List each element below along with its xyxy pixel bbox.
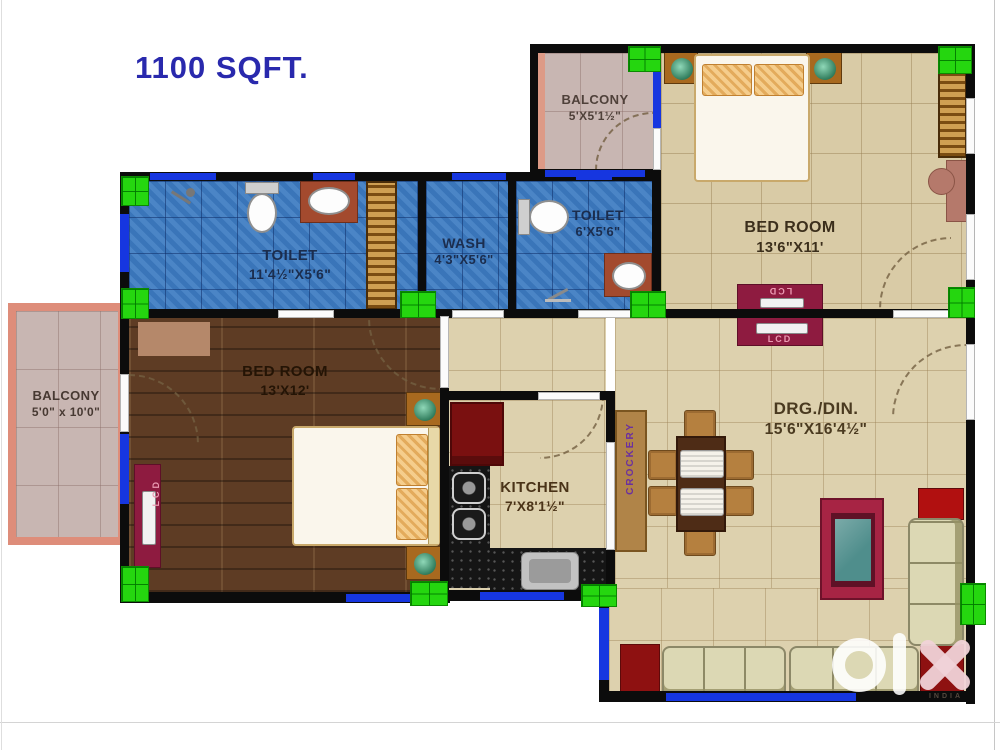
lcd-label: LCD [151,479,161,507]
bedroom-left-door [440,316,449,388]
kitchen-living-opening [606,442,615,550]
floor-mat [138,322,210,356]
column-marker [960,583,986,625]
room-label-toilet-big: TOILET 11'4½"X5'6" [180,246,400,283]
side-table-red [918,488,964,520]
room-name: KITCHEN [470,478,600,498]
room-label-kitchen: KITCHEN 7'X8'1½" [470,478,600,515]
olx-bar-icon [893,633,906,695]
room-name: WASH [416,234,512,252]
dining-table [676,436,726,532]
pillow [754,64,804,96]
tv-screen [760,298,804,308]
double-bed-top [694,54,810,182]
window [313,173,355,180]
room-dims: 6'X5'6" [540,224,656,241]
column-marker [948,287,975,318]
dining-chair [724,486,754,516]
dining-chair [684,528,716,556]
refrigerator [450,402,504,466]
column-marker [121,566,149,602]
double-bed-left [292,426,440,546]
room-name: DRG./DIN. [716,398,916,420]
column-marker [400,291,436,318]
bedroom-top-door [893,310,949,318]
shower-icon [545,283,575,309]
nightstand [406,392,442,426]
page-edge-left [1,0,2,750]
kitchen-sink [521,552,579,590]
side-table-red [620,644,660,692]
crockery-label: CROCKERY [625,422,636,495]
window-opening [966,214,975,280]
balcony-left-floor [16,311,118,537]
room-name: BALCONY [14,388,118,405]
room-label-wash: WASH 4'3"X5'6" [416,234,512,269]
lcd-label: LCD [738,334,822,344]
olx-watermark: INDIA [810,625,990,705]
center-table [820,498,884,600]
room-dims: 13'6"X11' [700,239,880,258]
room-dims: 11'4½"X5'6" [180,266,400,284]
wall-top [530,44,975,53]
column-marker [121,176,149,206]
washbasin [612,262,646,290]
room-dims: 5'X5'1½" [540,109,650,125]
page-title: 1100 SQFT. [135,50,309,86]
window [576,173,612,180]
balcony-left-door [120,374,129,432]
room-name: TOILET [540,206,656,224]
washbasin-counter [300,181,358,223]
floor-plan-canvas: LCD LCD LCD CROCKERY [0,0,1000,750]
page-edge-right [994,0,995,750]
toilet-wc-bowl [247,193,277,233]
wash-door [452,310,504,318]
pillow [702,64,752,96]
dining-chair [648,486,678,516]
window-opening [966,98,975,154]
column-marker [581,584,617,607]
nightstand [406,546,442,580]
main-entrance-door [966,344,975,420]
kitchen-door-arc [540,395,604,459]
placemat [680,450,724,478]
dining-chair [648,450,678,480]
plant-icon [814,58,836,80]
olx-x-icon [913,637,977,693]
balcony-top-door [653,128,661,170]
column-marker [410,581,448,606]
room-label-toilet-small: TOILET 6'X5'6" [540,206,656,241]
toilet-small-door [578,310,632,318]
nightstand [664,52,698,84]
plant-icon [414,399,436,421]
washbasin [308,187,350,215]
plant-icon [671,58,693,80]
window [120,434,129,504]
lcd-label: LCD [738,286,822,296]
pillow [396,488,428,540]
room-dims: 13'X12' [200,382,370,400]
column-marker [630,291,666,318]
room-name: BED ROOM [200,362,370,382]
wall-balcony-top-left [530,44,538,178]
column-marker [938,46,972,74]
passage-floor [448,318,606,391]
column-marker [121,288,149,319]
lcd-tv-unit-bedroom: LCD [134,464,161,568]
column-marker [628,46,661,72]
window [653,66,661,128]
toilet-big-door [278,310,334,318]
room-dims: 15'6"X16'4½" [716,420,916,440]
page-edge-bottom [0,722,1000,723]
window [150,173,216,180]
room-label-drg-din: DRG./DIN. 15'6"X16'4½" [716,398,916,440]
room-dims: 5'0" x 10'0" [14,405,118,421]
room-name: BED ROOM [700,218,880,239]
window [599,608,609,680]
room-dims: 4'3"X5'6" [416,252,512,269]
room-name: BALCONY [540,92,650,109]
crockery-cabinet: CROCKERY [615,410,647,552]
pillow [396,434,428,486]
room-name: TOILET [180,246,400,266]
room-label-bedroom-left: BED ROOM 13'X12' [200,362,370,399]
window [480,592,564,600]
kitchen-door [538,392,600,400]
olx-country-label: INDIA [916,693,976,700]
room-label-bedroom-top: BED ROOM 13'6"X11' [700,218,880,258]
room-dims: 7'X8'1½" [470,498,600,516]
room-label-balcony-top: BALCONY 5'X5'1½" [540,92,650,124]
balcony-left-door-arc [129,374,199,444]
window [120,214,129,272]
room-label-balcony-left: BALCONY 5'0" x 10'0" [14,388,118,420]
nightstand [806,52,842,84]
window [452,173,506,180]
tv-screen [756,323,808,334]
dining-chair [724,450,754,480]
bedroom-left-door-arc [368,318,440,390]
bedroom-top-door-arc [879,237,951,309]
shower-icon [168,184,198,212]
plant-icon [414,553,436,575]
dressing-stool [928,168,955,195]
olx-o-icon [832,638,886,692]
placemat [680,488,724,516]
window [346,594,410,602]
